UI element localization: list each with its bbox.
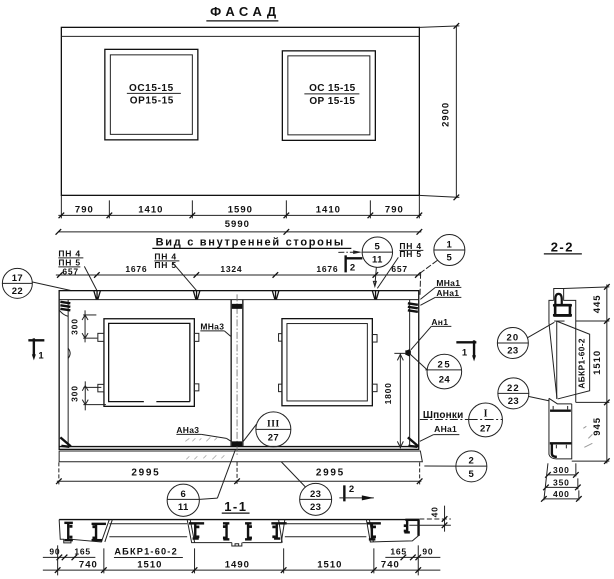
svg-text:ФАСАД: ФАСАД <box>210 4 281 19</box>
svg-text:2995: 2995 <box>316 467 345 478</box>
svg-text:1324: 1324 <box>220 264 242 274</box>
svg-text:740: 740 <box>381 559 400 570</box>
svg-text:90: 90 <box>422 546 433 556</box>
svg-text:27: 27 <box>268 432 279 443</box>
svg-text:1800: 1800 <box>383 382 393 404</box>
svg-text:ОР 15-15: ОР 15-15 <box>309 96 355 107</box>
svg-text:657: 657 <box>391 264 408 274</box>
svg-text:АНа1: АНа1 <box>434 424 457 434</box>
svg-text:11: 11 <box>372 254 383 265</box>
svg-text:27: 27 <box>480 423 491 434</box>
svg-text:1676: 1676 <box>125 264 147 274</box>
svg-text:445: 445 <box>592 294 603 313</box>
svg-text:МНа3: МНа3 <box>200 321 224 331</box>
svg-text:2: 2 <box>349 484 355 495</box>
svg-text:1: 1 <box>462 347 468 358</box>
svg-text:20: 20 <box>507 332 520 343</box>
svg-text:23: 23 <box>507 345 518 356</box>
svg-text:5: 5 <box>447 252 453 263</box>
svg-text:ПН 5: ПН 5 <box>399 249 422 259</box>
svg-text:ОС 15-15: ОС 15-15 <box>309 83 356 94</box>
svg-text:22: 22 <box>507 383 520 394</box>
svg-text:Ан1: Ан1 <box>431 317 448 327</box>
svg-text:ОС15-15: ОС15-15 <box>129 83 174 94</box>
svg-text:22: 22 <box>12 286 23 297</box>
svg-text:1510: 1510 <box>592 350 603 375</box>
svg-text:5: 5 <box>375 241 381 252</box>
svg-text:23: 23 <box>508 396 519 407</box>
svg-text:90: 90 <box>49 546 60 556</box>
svg-text:1590: 1590 <box>228 204 253 215</box>
svg-text:ОР15-15: ОР15-15 <box>130 95 174 106</box>
svg-text:III: III <box>267 419 280 429</box>
svg-text:165: 165 <box>390 546 407 556</box>
svg-text:2: 2 <box>350 262 356 273</box>
svg-text:I: I <box>484 408 488 419</box>
svg-text:25: 25 <box>438 359 452 370</box>
svg-text:300: 300 <box>69 318 79 335</box>
svg-text:1676: 1676 <box>316 264 338 274</box>
svg-text:790: 790 <box>385 204 404 215</box>
svg-text:5990: 5990 <box>225 219 250 230</box>
svg-text:АНа1: АНа1 <box>436 288 459 298</box>
svg-text:1410: 1410 <box>316 204 341 215</box>
svg-text:5: 5 <box>469 469 475 480</box>
svg-text:6: 6 <box>180 489 186 500</box>
svg-text:23: 23 <box>310 502 321 513</box>
svg-text:24: 24 <box>439 374 451 385</box>
svg-text:2: 2 <box>469 455 475 466</box>
svg-text:350: 350 <box>553 477 570 487</box>
svg-text:Вид с внутренней стороны: Вид с внутренней стороны <box>156 236 345 248</box>
svg-text:1: 1 <box>38 350 44 361</box>
svg-text:945: 945 <box>592 417 603 436</box>
svg-text:300: 300 <box>69 385 79 402</box>
svg-text:АБКР1-60-2: АБКР1-60-2 <box>576 338 586 389</box>
svg-text:11: 11 <box>178 502 189 513</box>
svg-text:2900: 2900 <box>440 102 451 127</box>
svg-text:2-2: 2-2 <box>551 239 574 254</box>
svg-text:300: 300 <box>553 465 570 475</box>
svg-text:1510: 1510 <box>317 559 342 570</box>
svg-text:1: 1 <box>447 239 453 250</box>
svg-text:1410: 1410 <box>138 204 163 215</box>
svg-text:400: 400 <box>553 489 570 499</box>
svg-text:1-1: 1-1 <box>224 499 247 514</box>
svg-text:790: 790 <box>75 204 94 215</box>
svg-text:АБКР1-60-2: АБКР1-60-2 <box>114 546 178 556</box>
svg-text:1510: 1510 <box>137 559 162 570</box>
svg-text:40: 40 <box>429 506 439 517</box>
svg-text:АНа3: АНа3 <box>176 425 199 435</box>
svg-text:740: 740 <box>79 559 98 570</box>
svg-text:ПН 5: ПН 5 <box>154 260 177 270</box>
svg-text:1490: 1490 <box>225 559 250 570</box>
svg-text:23: 23 <box>310 489 321 500</box>
svg-text:2995: 2995 <box>131 467 160 478</box>
svg-text:17: 17 <box>12 273 23 284</box>
svg-text:МНа1: МНа1 <box>436 278 460 288</box>
